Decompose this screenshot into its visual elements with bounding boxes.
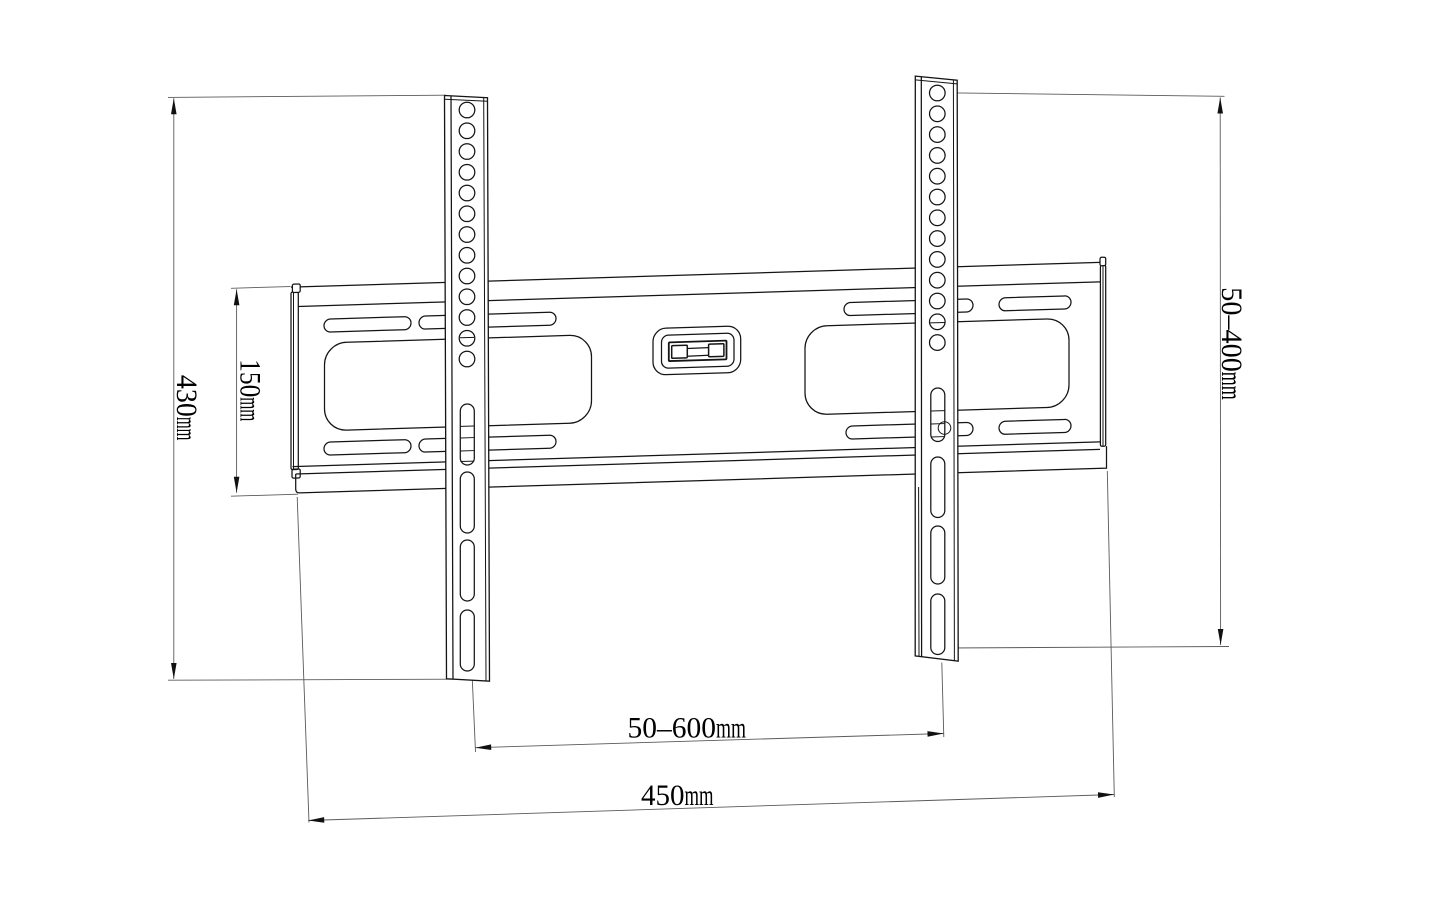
svg-text:450mm: 450mm — [641, 779, 714, 812]
svg-text:150mm: 150mm — [234, 359, 267, 421]
svg-text:50–600mm: 50–600mm — [628, 711, 747, 744]
svg-text:50–400mm: 50–400mm — [1215, 287, 1248, 400]
svg-text:430mm: 430mm — [170, 375, 203, 441]
